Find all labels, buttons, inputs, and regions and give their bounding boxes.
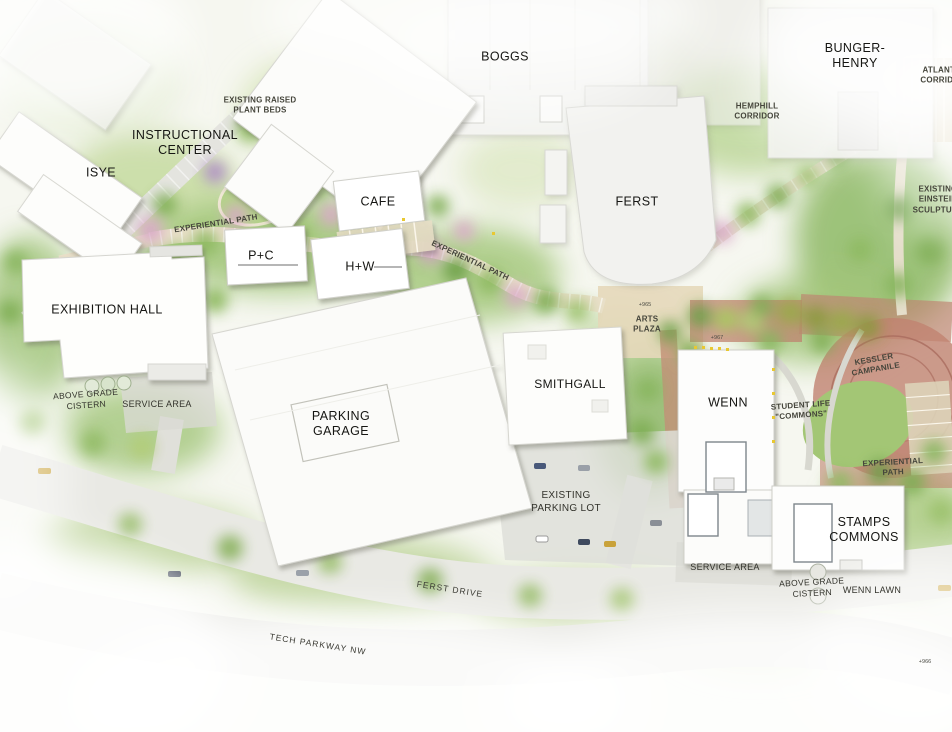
site-map-graphic (0, 0, 952, 732)
campus-site-plan: ISYE INSTRUCTIONAL CENTER BOGGS BUNGER-H… (0, 0, 952, 732)
building-stamps-commons (772, 486, 904, 570)
building-smithgall (503, 327, 627, 445)
service-area-west-pad (120, 372, 217, 433)
building-p-c (225, 226, 308, 285)
building-wenn (678, 350, 774, 564)
cistern-west (85, 376, 131, 393)
building-h-w (311, 229, 410, 300)
